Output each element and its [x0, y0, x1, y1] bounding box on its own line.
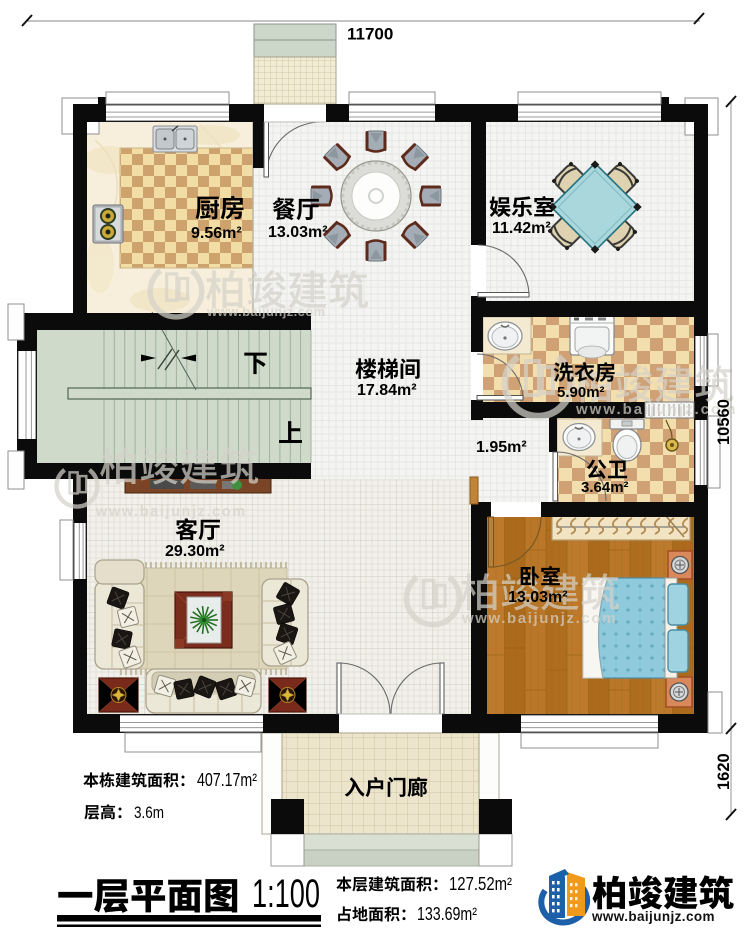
svg-text:407.17m²: 407.17m²	[197, 770, 257, 790]
svg-text:29.30m²: 29.30m²	[165, 543, 225, 560]
svg-text:13.03m²: 13.03m²	[508, 589, 568, 606]
svg-text:3.64m²: 3.64m²	[581, 479, 629, 496]
svg-text:1.95m²: 1.95m²	[476, 439, 527, 456]
svg-text:10560: 10560	[715, 399, 733, 445]
svg-text:3.6m: 3.6m	[134, 803, 164, 822]
svg-text:13.03m²: 13.03m²	[268, 224, 328, 241]
svg-text:www.baijunjz.com: www.baijunjz.com	[95, 504, 247, 520]
svg-text:www.baijunjz.com: www.baijunjz.com	[206, 304, 326, 319]
svg-text:9.56m²: 9.56m²	[191, 225, 242, 242]
svg-text:133.69m²: 133.69m²	[417, 904, 477, 924]
svg-text:www.baijunjz.com: www.baijunjz.com	[591, 909, 715, 924]
svg-text:11.42m²: 11.42m²	[492, 220, 551, 237]
svg-text:11700: 11700	[347, 25, 393, 44]
svg-text:5.90m²: 5.90m²	[557, 384, 605, 401]
svg-text:www.baijunjz.com: www.baijunjz.com	[575, 401, 737, 418]
svg-text:17.84m²: 17.84m²	[357, 382, 417, 399]
svg-text:1:100: 1:100	[252, 872, 320, 916]
svg-text:www.baijunjz.com: www.baijunjz.com	[461, 610, 617, 627]
svg-text:1620: 1620	[715, 753, 733, 790]
svg-text:127.52m²: 127.52m²	[449, 874, 512, 894]
